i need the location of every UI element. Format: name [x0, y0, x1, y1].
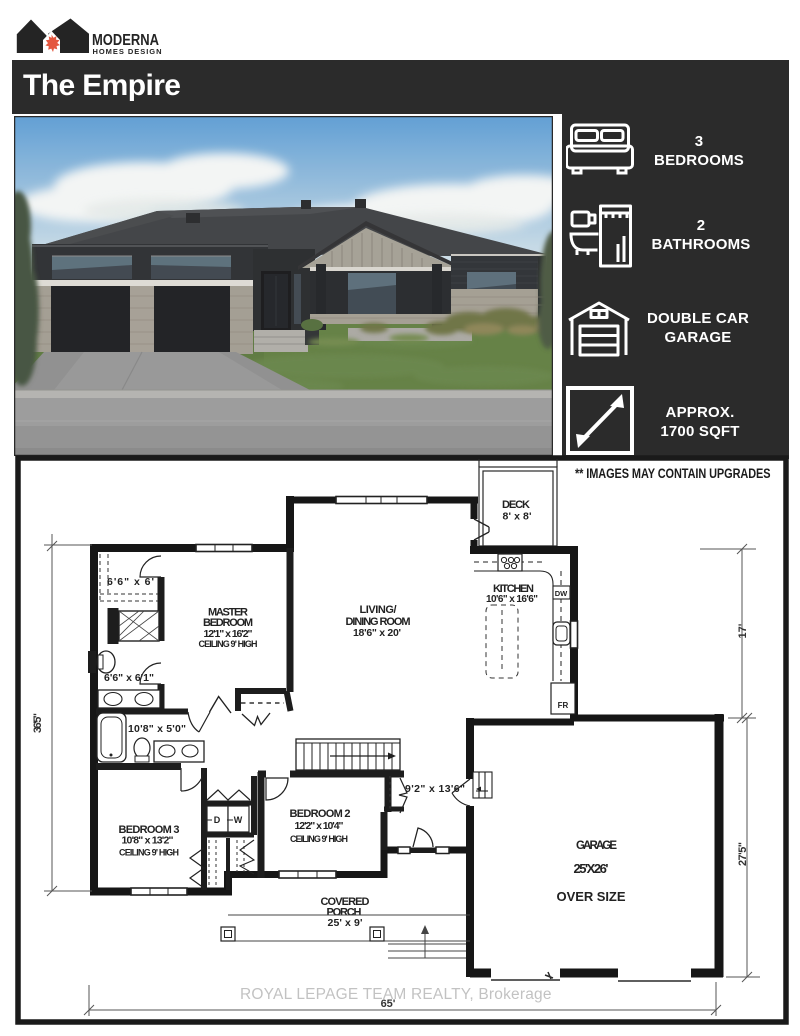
- svg-text:DW: DW: [555, 589, 568, 598]
- svg-text:W: W: [234, 815, 243, 825]
- svg-text:OVER SIZE: OVER SIZE: [557, 889, 626, 904]
- svg-text:CEILING 9' HIGH: CEILING 9' HIGH: [290, 834, 348, 844]
- svg-text:D: D: [214, 815, 221, 825]
- svg-text:FR: FR: [558, 701, 569, 710]
- svg-text:12'2" x 10'4": 12'2" x 10'4": [295, 820, 344, 832]
- svg-text:8' x 8': 8' x 8': [503, 511, 532, 523]
- svg-text:17': 17': [737, 623, 749, 638]
- svg-text:CEILING 9' HIGH: CEILING 9' HIGH: [199, 639, 258, 649]
- svg-text:36'5": 36'5": [32, 713, 44, 733]
- svg-text:DECK: DECK: [502, 499, 530, 511]
- svg-text:25' x 9': 25' x 9': [328, 917, 363, 929]
- svg-text:6'6" x 6'1": 6'6" x 6'1": [104, 672, 154, 684]
- svg-text:LIVING/: LIVING/: [360, 604, 397, 616]
- svg-text:10'6" x 16'6": 10'6" x 16'6": [486, 594, 538, 605]
- svg-text:27'5": 27'5": [737, 842, 749, 866]
- svg-text:10'8" x 5'0": 10'8" x 5'0": [128, 723, 186, 735]
- svg-text:9'2" x 13'6": 9'2" x 13'6": [405, 783, 465, 795]
- svg-text:18'6" x 20': 18'6" x 20': [353, 627, 401, 639]
- svg-text:6'6" x 6': 6'6" x 6': [107, 576, 154, 588]
- svg-text:CEILING 9' HIGH: CEILING 9' HIGH: [119, 848, 179, 858]
- svg-text:GARAGE: GARAGE: [576, 840, 617, 852]
- svg-text:10'8" x 13'2": 10'8" x 13'2": [122, 835, 174, 847]
- svg-text:BEDROOM 2: BEDROOM 2: [290, 808, 351, 820]
- svg-text:25'X26': 25'X26': [574, 861, 609, 876]
